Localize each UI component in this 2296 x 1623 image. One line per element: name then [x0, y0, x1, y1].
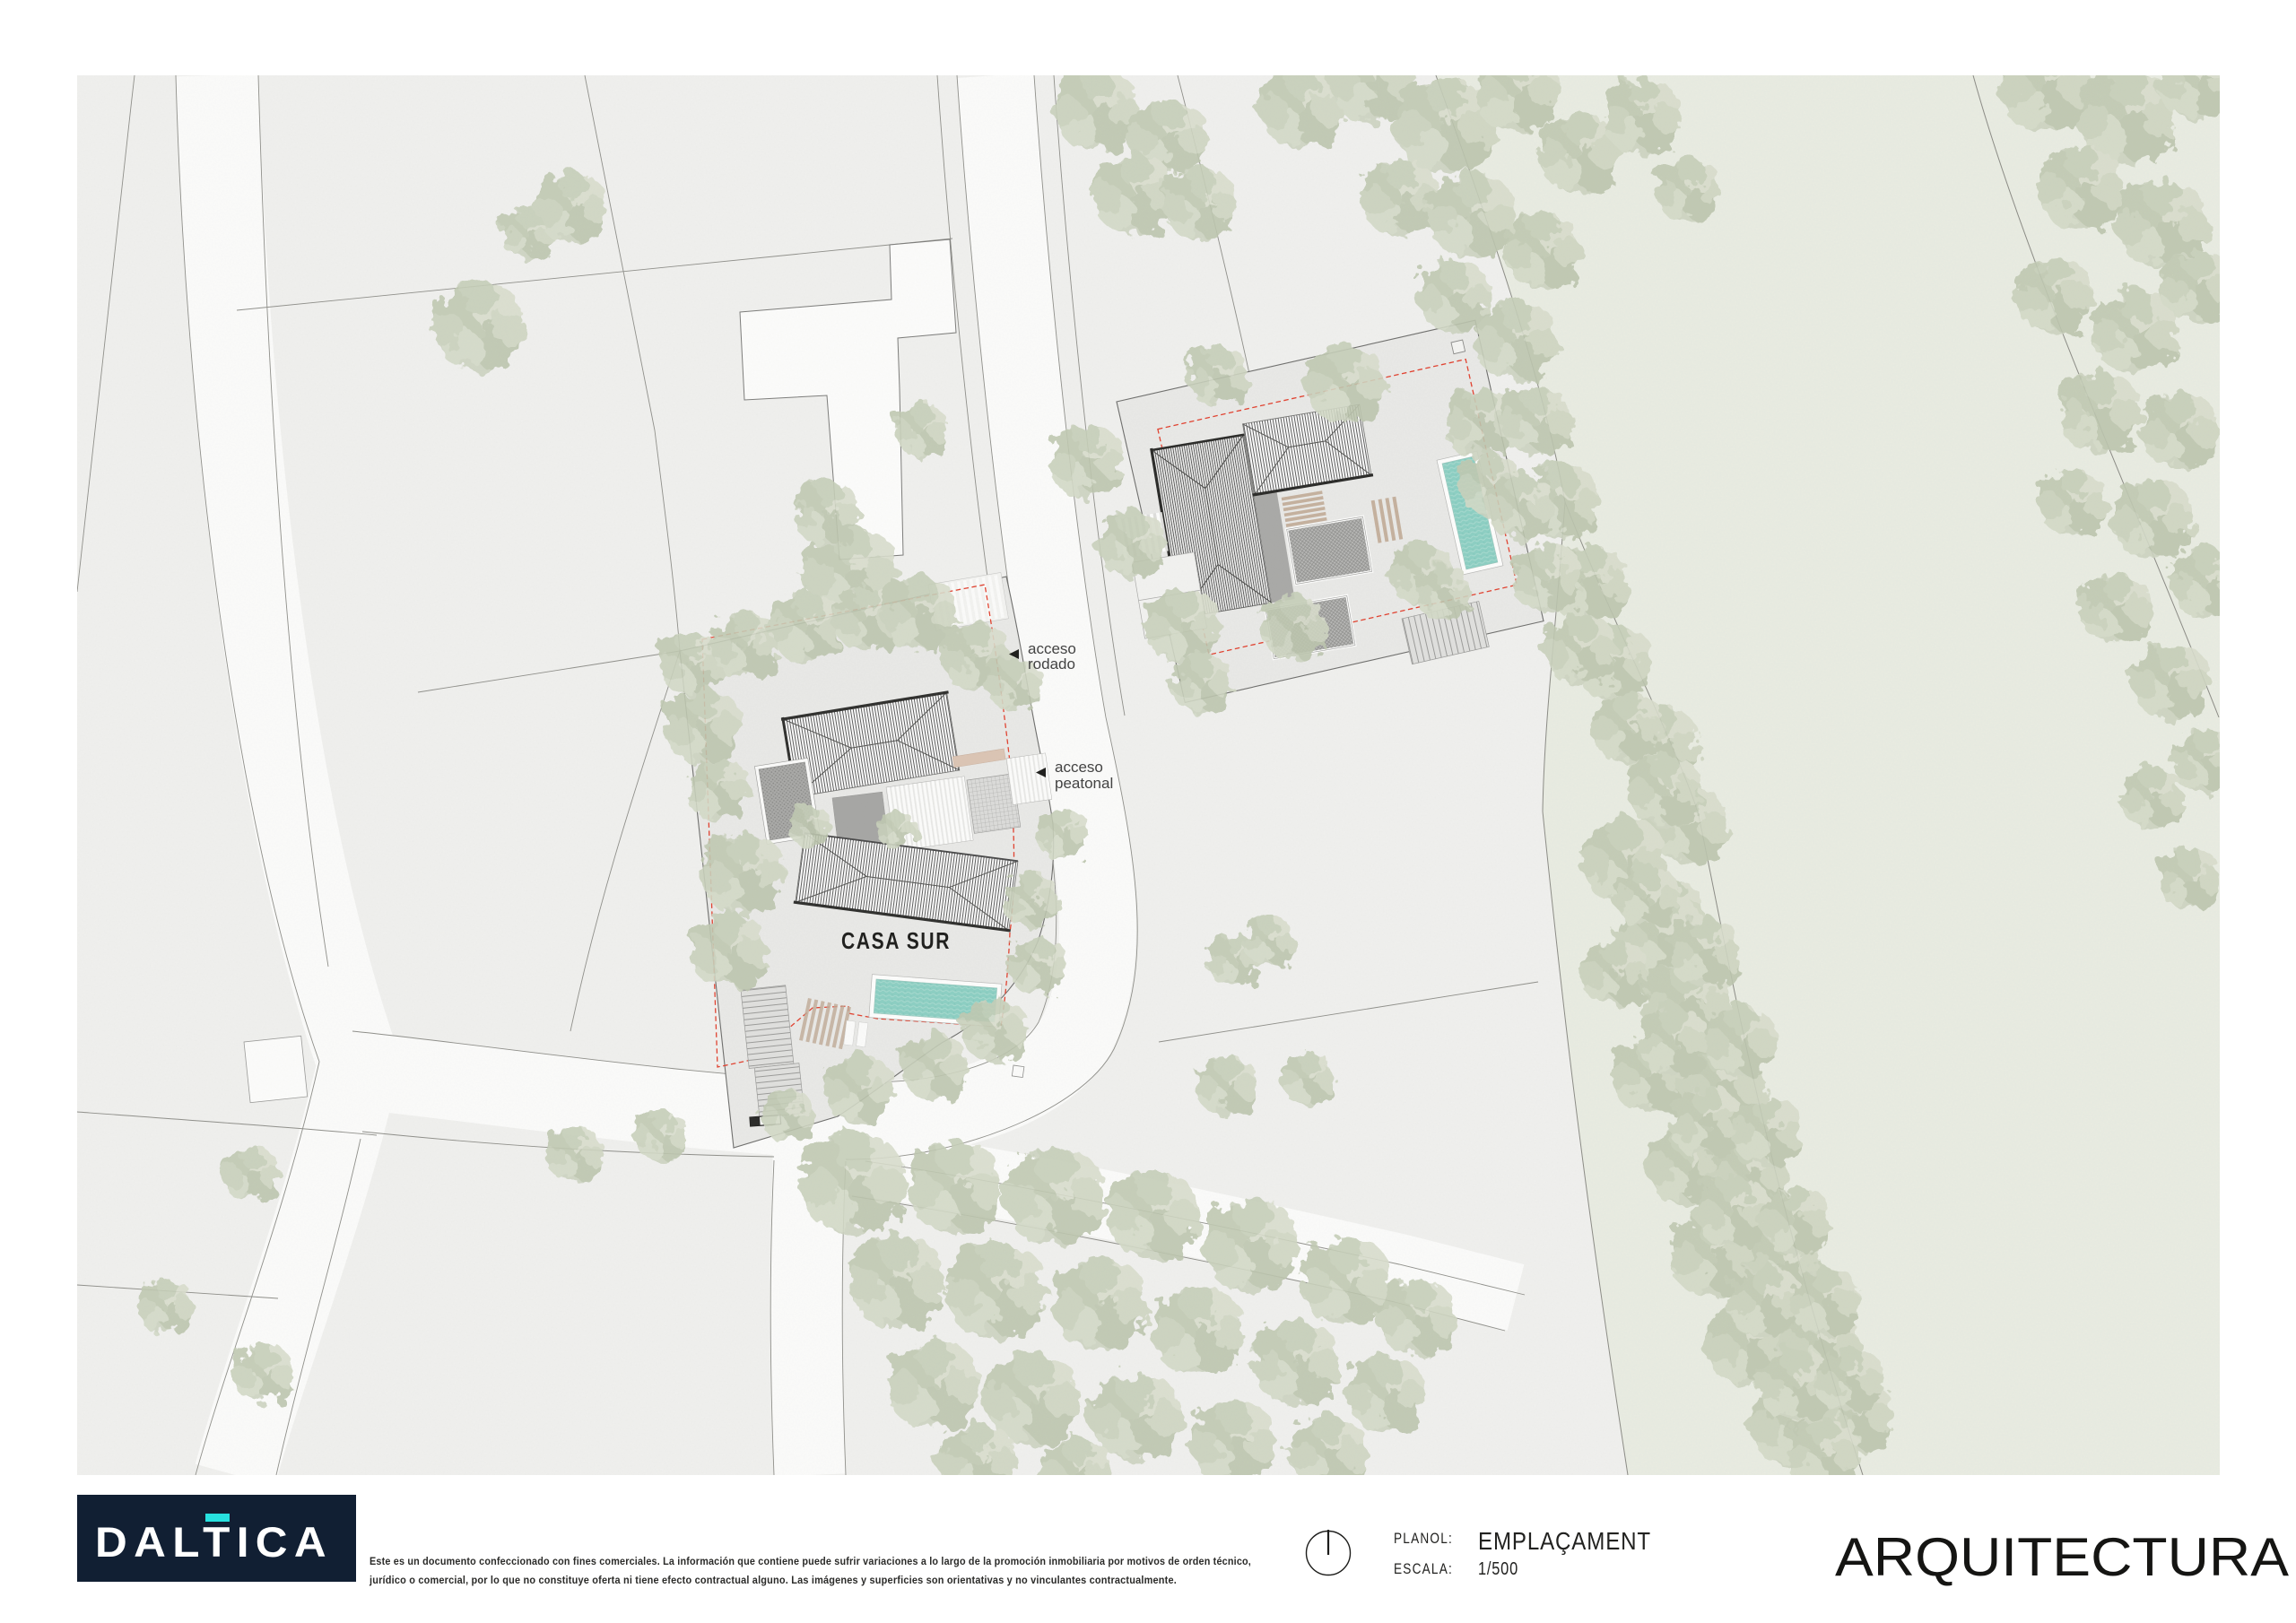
svg-text:Este es un documento confeccio: Este es un documento confeccionado con f… — [370, 1557, 1251, 1567]
svg-text:EMPLAÇAMENT: EMPLAÇAMENT — [1478, 1527, 1651, 1555]
svg-text:DALTICA: DALTICA — [95, 1518, 333, 1566]
svg-text:1/500: 1/500 — [1478, 1559, 1518, 1579]
svg-text:ARQUITECTURA: ARQUITECTURA — [1835, 1527, 2289, 1587]
svg-text:jurídico o comercial, por lo q: jurídico o comercial, por lo que no cons… — [369, 1575, 1177, 1586]
svg-text:PLANOL:: PLANOL: — [1394, 1530, 1453, 1547]
svg-text:ESCALA:: ESCALA: — [1394, 1560, 1453, 1577]
